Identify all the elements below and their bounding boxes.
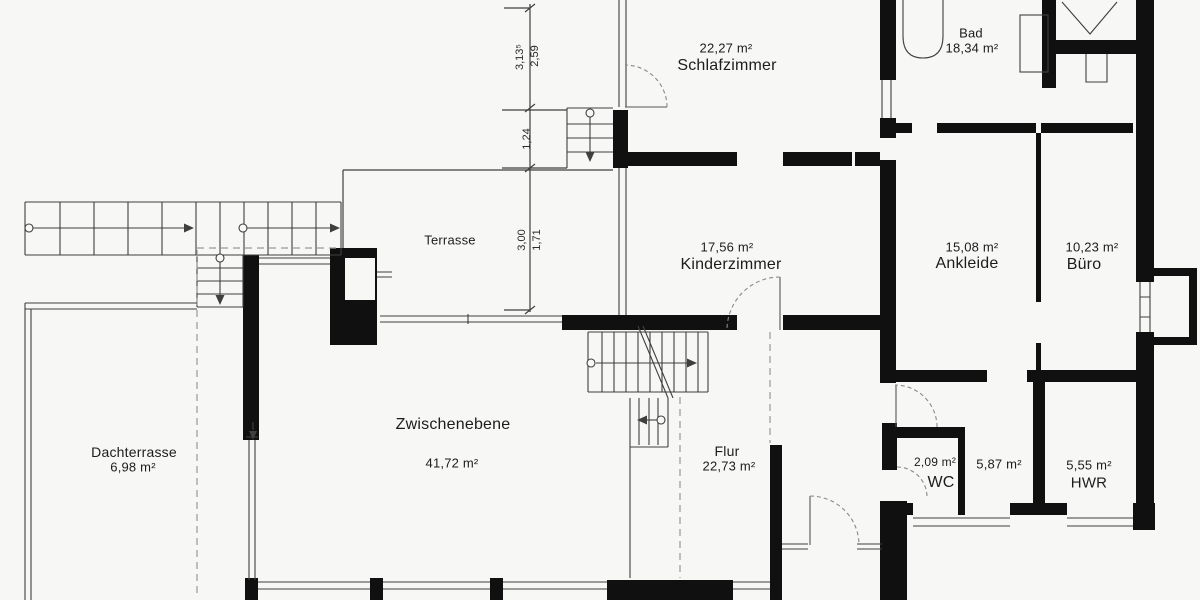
label-buero-name: Büro	[1067, 256, 1102, 274]
label-buero-area: 10,23 m²	[1066, 240, 1119, 255]
duct-icon	[1086, 54, 1107, 82]
dimension-label-0: 3,13⁵	[514, 44, 526, 70]
shaft-icon	[1062, 2, 1117, 34]
bathtub-icon	[903, 0, 943, 58]
dimension-label-4: 1,71	[531, 229, 543, 250]
windows	[246, 0, 1150, 589]
door-arcs	[625, 65, 937, 545]
label-ankleide-name: Ankleide	[936, 255, 999, 273]
stairs	[25, 108, 708, 578]
door-leaves	[625, 107, 896, 545]
label-schlafzimmer-area: 22,27 m²	[700, 41, 753, 56]
stair-arrowheads	[184, 152, 697, 440]
fixtures	[903, 0, 1117, 82]
label-terrasse-name: Terrasse	[424, 233, 475, 248]
label-zwischenebene-area: 41,72 m²	[426, 456, 479, 471]
dimension-lines	[343, 4, 613, 314]
shower-icon	[1020, 15, 1048, 72]
label-bad-name: Bad	[959, 26, 983, 41]
label-schlafzimmer-name: Schlafzimmer	[677, 57, 776, 75]
label-dachterrasse-area: 6,98 m²	[110, 460, 155, 475]
dimension-label-1: 2,59	[529, 45, 541, 66]
label-flur-area: 22,73 m²	[703, 459, 756, 474]
dimension-label-3: 3,00	[516, 229, 528, 250]
plan-linework	[0, 0, 1200, 600]
label-wc-name: WC	[927, 474, 954, 492]
label-hwr-name: HWR	[1071, 475, 1107, 492]
label-kinderzimmer-name: Kinderzimmer	[680, 256, 781, 274]
label-raum-587-area: 5,87 m²	[976, 457, 1021, 472]
label-dachterrasse-name: Dachterrasse	[91, 444, 177, 460]
dimension-label-2: 1,24	[521, 128, 533, 149]
floor-plan: Schlafzimmer22,27 m²Bad18,34 m²TerrasseK…	[0, 0, 1200, 600]
label-flur-name: Flur	[715, 443, 740, 459]
label-ankleide-area: 15,08 m²	[946, 240, 999, 255]
label-wc-area: 2,09 m²	[914, 455, 956, 469]
label-zwischenebene-name: Zwischenebene	[396, 416, 511, 434]
label-kinderzimmer-area: 17,56 m²	[701, 240, 754, 255]
label-hwr-area: 5,55 m²	[1066, 458, 1111, 473]
label-bad-area: 18,34 m²	[946, 41, 999, 56]
